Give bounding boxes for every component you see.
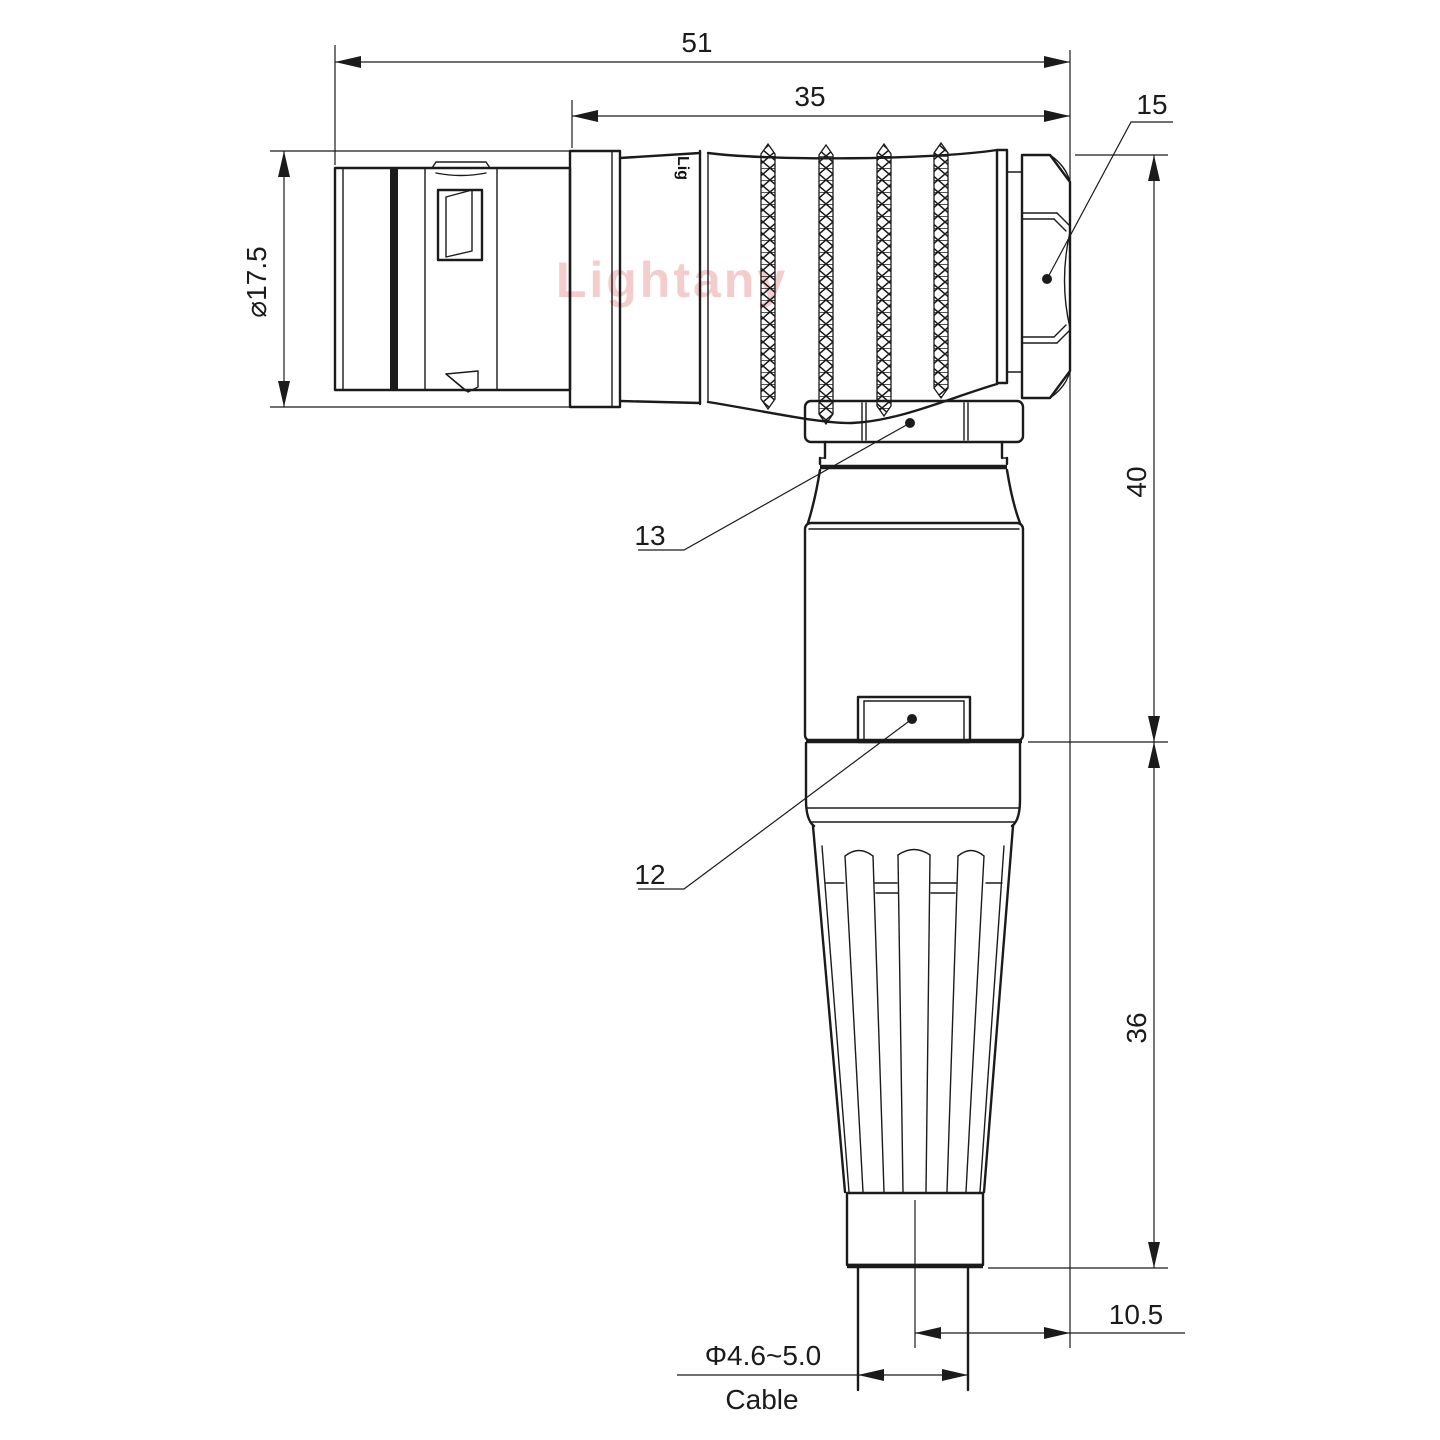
- watermark-text: Lightany: [556, 252, 788, 308]
- knurl-band: [934, 143, 948, 398]
- strain-relief: [806, 743, 1020, 1192]
- boot-rib: [898, 850, 930, 1193]
- boot-rib: [845, 851, 884, 1193]
- dim-text-36: 36: [1121, 1012, 1152, 1043]
- dim-body-length: 35: [572, 81, 1070, 148]
- ref-text-13: 13: [634, 520, 665, 551]
- dim-cable-diameter: Φ4.6~5.0 Cable: [677, 1340, 968, 1415]
- dim-upper-height: 40: [1028, 155, 1168, 742]
- dim-text-diameter: ⌀17.5: [241, 246, 272, 317]
- keying-window: [438, 190, 482, 260]
- ref-text-15: 15: [1136, 89, 1167, 120]
- dim-overall-length: 51: [335, 27, 1070, 1348]
- knurl-band: [761, 144, 775, 409]
- plug-front-shell: [335, 162, 570, 392]
- leader-13: 13: [634, 418, 915, 551]
- dim-front-diameter: ⌀17.5: [241, 151, 578, 407]
- dim-text-40: 40: [1121, 466, 1152, 497]
- knurl-band: [819, 145, 833, 424]
- bayonet-slot-band: [390, 168, 398, 390]
- dim-text-10-5: 10.5: [1109, 1299, 1164, 1330]
- dim-text-35: 35: [794, 81, 825, 112]
- connector-dimension-drawing: Lightany Lig: [0, 0, 1440, 1440]
- cable-label: Cable: [725, 1384, 798, 1415]
- part-marking-text: Lig: [674, 156, 691, 180]
- ref-text-12: 12: [634, 859, 665, 890]
- elbow-barrel: [805, 523, 1023, 742]
- knurl-band: [877, 144, 891, 416]
- boot-rib: [947, 851, 984, 1193]
- dim-text-51: 51: [681, 27, 712, 58]
- dim-text-cable-diameter: Φ4.6~5.0: [705, 1340, 822, 1371]
- dim-cable-offset: 10.5: [915, 1200, 1185, 1348]
- leader-15: 15: [1042, 89, 1173, 284]
- elbow-neck: [808, 442, 1020, 523]
- technical-drawing-page: Lightany Lig: [0, 0, 1440, 1440]
